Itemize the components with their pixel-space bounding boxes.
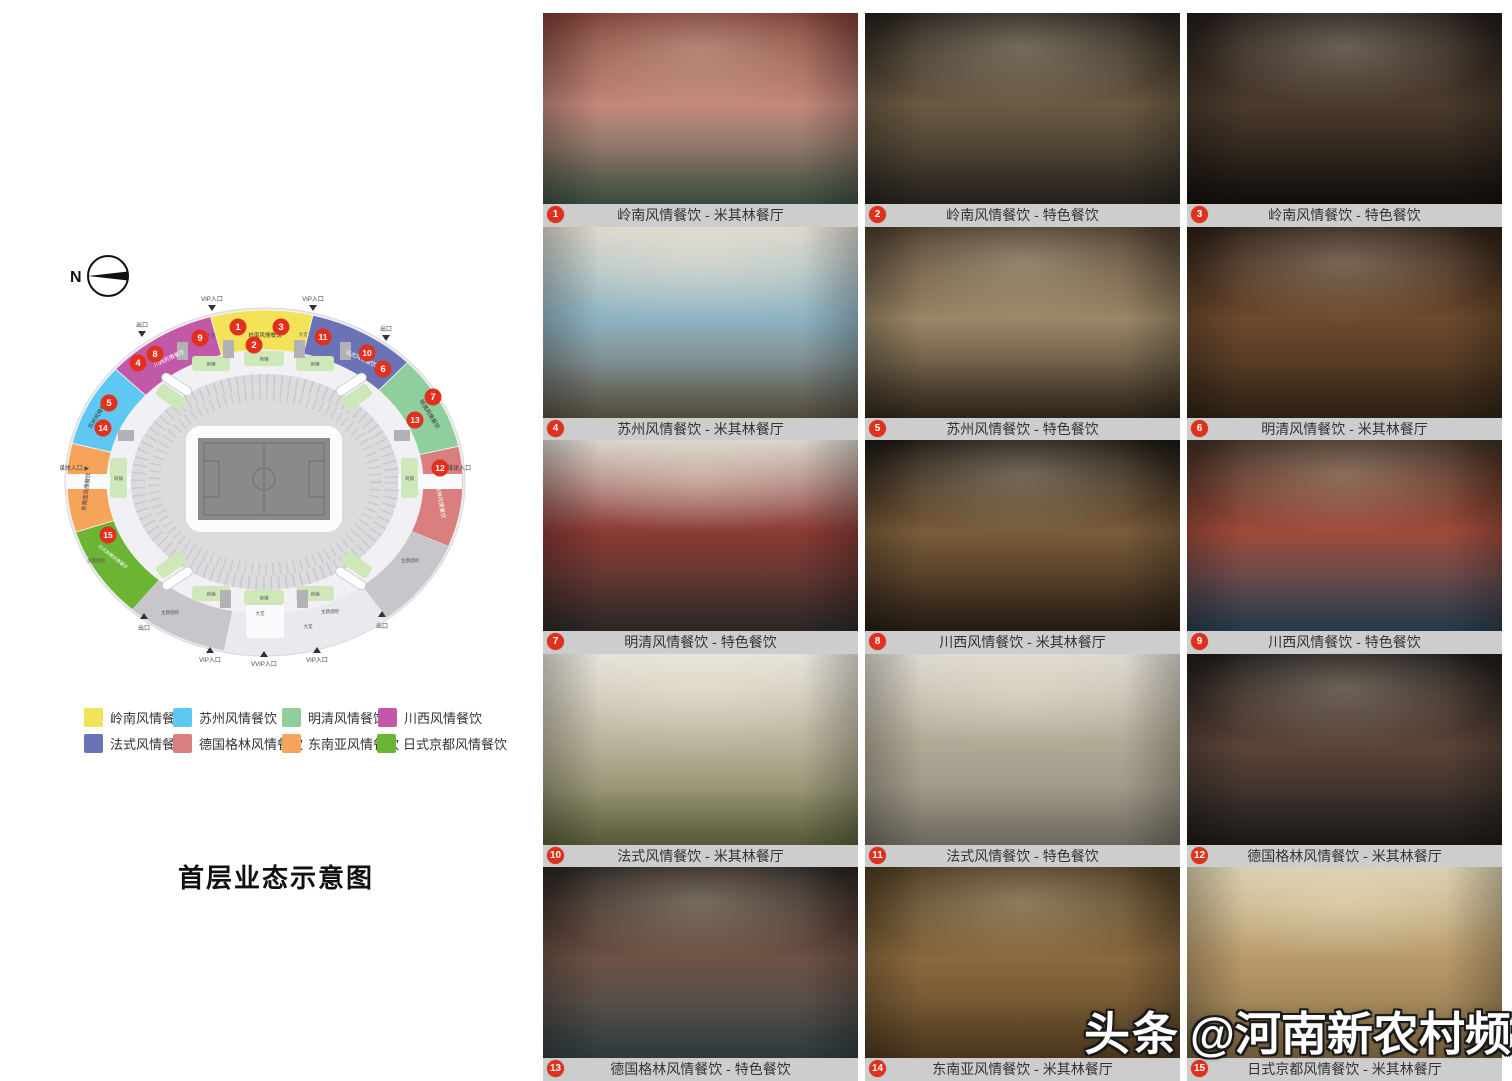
svg-text:出口: 出口 (376, 622, 388, 630)
number-badge: 8 (869, 633, 886, 650)
svg-text:1: 1 (235, 322, 241, 333)
number-badge: 4 (547, 420, 564, 437)
caption-text: 德国格林风情餐饮 - 特色餐饮 (610, 1059, 790, 1079)
legend-swatch (377, 734, 396, 753)
photo-caption: 3岭南风情餐饮 - 特色餐饮 (1187, 204, 1502, 227)
arrow-down-icon (382, 335, 390, 341)
caption-text: 法式风情餐饮 - 特色餐饮 (946, 846, 1098, 866)
number-badge: 3 (1191, 206, 1208, 223)
legend-swatch (84, 708, 103, 727)
photo-cell: 11法式风情餐饮 - 特色餐饮 (865, 654, 1180, 868)
svg-text:6: 6 (380, 364, 385, 375)
photo-cell: 1岭南风情餐饮 - 米其林餐厅 (543, 13, 858, 227)
photo-caption: 13德国格林风情餐饮 - 特色餐饮 (543, 1058, 858, 1081)
svg-text:主题酒吧: 主题酒吧 (401, 557, 419, 564)
photo-cell: 7明清风情餐饮 - 特色餐饮 (543, 440, 858, 654)
svg-text:大堂: 大堂 (304, 623, 313, 630)
watermark: 头条@河南新农村频道 (1084, 998, 1512, 1064)
photo-cell: 2岭南风情餐饮 - 特色餐饮 (865, 13, 1180, 227)
photo-cell: 10法式风情餐饮 - 米其林餐厅 (543, 654, 858, 868)
svg-text:3: 3 (278, 322, 283, 333)
photo-caption: 9川西风情餐饮 - 特色餐饮 (1187, 631, 1502, 654)
svg-text:VIP入口: VIP入口 (199, 657, 221, 664)
restaurant-photo (865, 13, 1180, 204)
photo-caption: 8川西风情餐饮 - 米其林餐厅 (865, 631, 1180, 654)
photo-cell: 5苏州风情餐饮 - 特色餐饮 (865, 227, 1180, 441)
number-badge: 14 (869, 1060, 886, 1077)
number-badge: 2 (869, 206, 886, 223)
number-badge: 12 (1191, 847, 1208, 864)
caption-text: 川西风情餐饮 - 特色餐饮 (1268, 632, 1420, 652)
photo-cell: 3岭南风情餐饮 - 特色餐饮 (1187, 13, 1502, 227)
svg-text:VIP入口: VIP入口 (302, 296, 324, 303)
photo-caption: 11法式风情餐饮 - 特色餐饮 (865, 845, 1180, 868)
stadium-floorplan: 商铺 商铺 商铺 商铺 商铺 商铺 商铺 商铺 大堂 大堂 大堂 大堂 主题酒吧… (60, 290, 480, 690)
svg-text:VIP入口: VIP入口 (201, 296, 223, 303)
svg-text:商铺: 商铺 (260, 595, 269, 602)
number-badge: 11 (869, 847, 886, 864)
svg-text:商铺: 商铺 (405, 475, 414, 482)
restaurant-photo-grid: 1岭南风情餐饮 - 米其林餐厅 2岭南风情餐饮 - 特色餐饮 3岭南风情餐饮 -… (543, 13, 1502, 1081)
svg-text:商铺: 商铺 (114, 475, 123, 482)
svg-text:7: 7 (430, 392, 435, 403)
svg-text:主题酒吧: 主题酒吧 (321, 608, 339, 615)
photo-cell: 6明清风情餐饮 - 米其林餐厅 (1187, 227, 1502, 441)
photo-cell: 8川西风情餐饮 - 米其林餐厅 (865, 440, 1180, 654)
caption-text: 明清风情餐饮 - 特色餐饮 (624, 632, 776, 652)
svg-text:商铺: 商铺 (260, 356, 269, 363)
svg-text:12: 12 (435, 463, 445, 473)
number-badge: 9 (1191, 633, 1208, 650)
restaurant-photo (543, 867, 858, 1058)
photo-cell: 12德国格林风情餐饮 - 米其林餐厅 (1187, 654, 1502, 868)
svg-text:商铺: 商铺 (311, 591, 320, 598)
restaurant-photo (543, 440, 858, 631)
legend-swatch (173, 734, 192, 753)
number-badge: 1 (547, 206, 564, 223)
svg-text:VIP入口: VIP入口 (306, 657, 328, 664)
svg-text:商铺: 商铺 (207, 591, 216, 598)
svg-text:2: 2 (251, 340, 256, 351)
watermark-handle: @河南新农村频道 (1190, 1008, 1512, 1060)
photo-caption: 4苏州风情餐饮 - 米其林餐厅 (543, 418, 858, 441)
arrow-down-icon (138, 331, 146, 337)
number-badge: 10 (547, 847, 564, 864)
svg-text:VVIP入口: VVIP入口 (251, 661, 277, 668)
restaurant-photo (1187, 654, 1502, 845)
svg-text:15: 15 (103, 530, 113, 540)
number-badge: 7 (547, 633, 564, 650)
svg-text:大堂: 大堂 (256, 610, 265, 617)
photo-caption: 5苏州风情餐饮 - 特色餐饮 (865, 418, 1180, 441)
legend-swatch (173, 708, 192, 727)
restaurant-photo (543, 13, 858, 204)
restaurant-photo (1187, 13, 1502, 204)
svg-text:9: 9 (197, 333, 202, 344)
legend-swatch (282, 734, 301, 753)
svg-text:商铺: 商铺 (311, 361, 320, 368)
svg-text:4: 4 (135, 358, 141, 369)
caption-text: 岭南风情餐饮 - 米其林餐厅 (617, 205, 783, 225)
number-badge: 5 (869, 420, 886, 437)
svg-text:出口: 出口 (136, 321, 148, 329)
caption-text: 苏州风情餐饮 - 特色餐饮 (946, 419, 1098, 439)
legend-item-kyoto: 日式京都风情餐饮 (377, 734, 507, 753)
caption-text: 法式风情餐饮 - 米其林餐厅 (617, 846, 783, 866)
svg-text:13: 13 (410, 415, 420, 425)
number-badge: 6 (1191, 420, 1208, 437)
photo-caption: 7明清风情餐饮 - 特色餐饮 (543, 631, 858, 654)
svg-text:商铺: 商铺 (207, 361, 216, 368)
caption-text: 川西风情餐饮 - 米其林餐厅 (939, 632, 1105, 652)
photo-caption: 10法式风情餐饮 - 米其林餐厅 (543, 845, 858, 868)
restaurant-photo (1187, 227, 1502, 418)
legend-swatch (282, 708, 301, 727)
svg-text:出口: 出口 (380, 325, 392, 333)
svg-text:10: 10 (362, 348, 372, 358)
restaurant-photo (865, 654, 1180, 845)
restaurant-photo (865, 440, 1180, 631)
restaurant-photo (865, 227, 1180, 418)
caption-text: 岭南风情餐饮 - 特色餐饮 (946, 205, 1098, 225)
legend-item-mingqing: 明清风情餐饮 (282, 708, 386, 727)
caption-text: 德国格林风情餐饮 - 米其林餐厅 (1247, 846, 1441, 866)
svg-text:5: 5 (106, 398, 112, 409)
photo-cell: 13德国格林风情餐饮 - 特色餐饮 (543, 867, 858, 1081)
caption-text: 明清风情餐饮 - 米其林餐厅 (1261, 419, 1427, 439)
legend-item-suzhou: 苏州风情餐饮 (173, 708, 277, 727)
watermark-brand: 头条 (1084, 1008, 1180, 1060)
photo-caption: 6明清风情餐饮 - 米其林餐厅 (1187, 418, 1502, 441)
photo-cell: 4苏州风情餐饮 - 米其林餐厅 (543, 227, 858, 441)
svg-text:大堂: 大堂 (299, 331, 308, 338)
legend-swatch (378, 708, 397, 727)
legend-item-chuanxi: 川西风情餐饮 (378, 708, 482, 727)
compass-north-label: N (70, 269, 82, 286)
photo-cell: 9川西风情餐饮 - 特色餐饮 (1187, 440, 1502, 654)
svg-text:8: 8 (152, 349, 157, 360)
arrow-down-icon (208, 305, 216, 311)
restaurant-photo (543, 654, 858, 845)
page-title: 首层业态示意图 (178, 858, 374, 895)
caption-text: 苏州风情餐饮 - 米其林餐厅 (617, 419, 783, 439)
arrow-down-icon (309, 305, 317, 311)
photo-caption: 2岭南风情餐饮 - 特色餐饮 (865, 204, 1180, 227)
svg-text:主题酒吧: 主题酒吧 (87, 557, 105, 564)
photo-caption: 1岭南风情餐饮 - 米其林餐厅 (543, 204, 858, 227)
number-badge: 13 (547, 1060, 564, 1077)
svg-text:14: 14 (98, 423, 108, 433)
compass-needle-icon (88, 272, 128, 281)
svg-text:出口: 出口 (138, 624, 150, 632)
restaurant-photo (543, 227, 858, 418)
restaurant-photo (1187, 440, 1502, 631)
legend-swatch (84, 734, 103, 753)
svg-text:主题酒吧: 主题酒吧 (161, 609, 179, 616)
svg-text:媒体入口 ▶: 媒体入口 ▶ (60, 464, 90, 472)
caption-text: 岭南风情餐饮 - 特色餐饮 (1268, 205, 1420, 225)
svg-text:11: 11 (319, 332, 328, 342)
photo-caption: 12德国格林风情餐饮 - 米其林餐厅 (1187, 845, 1502, 868)
